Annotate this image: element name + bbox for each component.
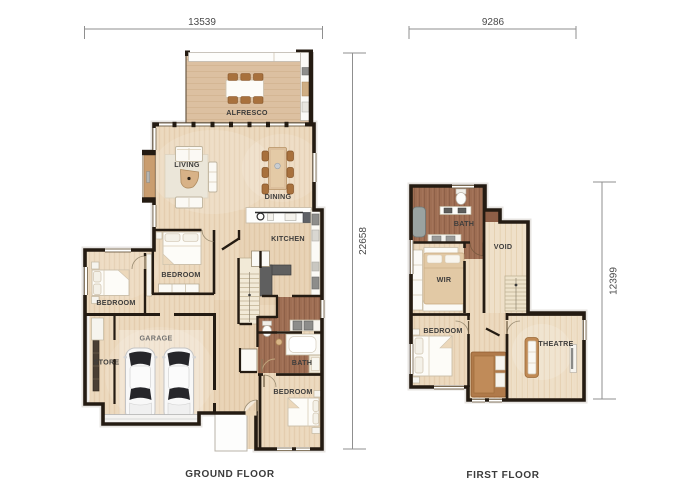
svg-text:22658: 22658 [358, 227, 369, 255]
svg-text:GROUND FLOOR: GROUND FLOOR [185, 469, 275, 480]
svg-text:BEDROOM: BEDROOM [273, 387, 312, 396]
svg-text:BEDROOM: BEDROOM [423, 326, 462, 335]
svg-text:FIRST FLOOR: FIRST FLOOR [466, 470, 539, 481]
svg-text:9286: 9286 [482, 17, 505, 28]
svg-text:DINING: DINING [265, 192, 292, 201]
svg-text:BEDROOM: BEDROOM [96, 298, 135, 307]
svg-text:13539: 13539 [188, 17, 216, 28]
svg-text:WIR: WIR [437, 275, 452, 284]
svg-text:ALFRESCO: ALFRESCO [226, 108, 268, 117]
svg-text:BATH: BATH [292, 358, 312, 367]
svg-text:KITCHEN: KITCHEN [271, 234, 305, 243]
svg-text:THEATRE: THEATRE [538, 339, 573, 348]
svg-text:BATH: BATH [454, 219, 474, 228]
svg-text:VOID: VOID [494, 242, 513, 251]
svg-text:12399: 12399 [609, 267, 620, 295]
svg-text:BEDROOM: BEDROOM [161, 270, 200, 279]
